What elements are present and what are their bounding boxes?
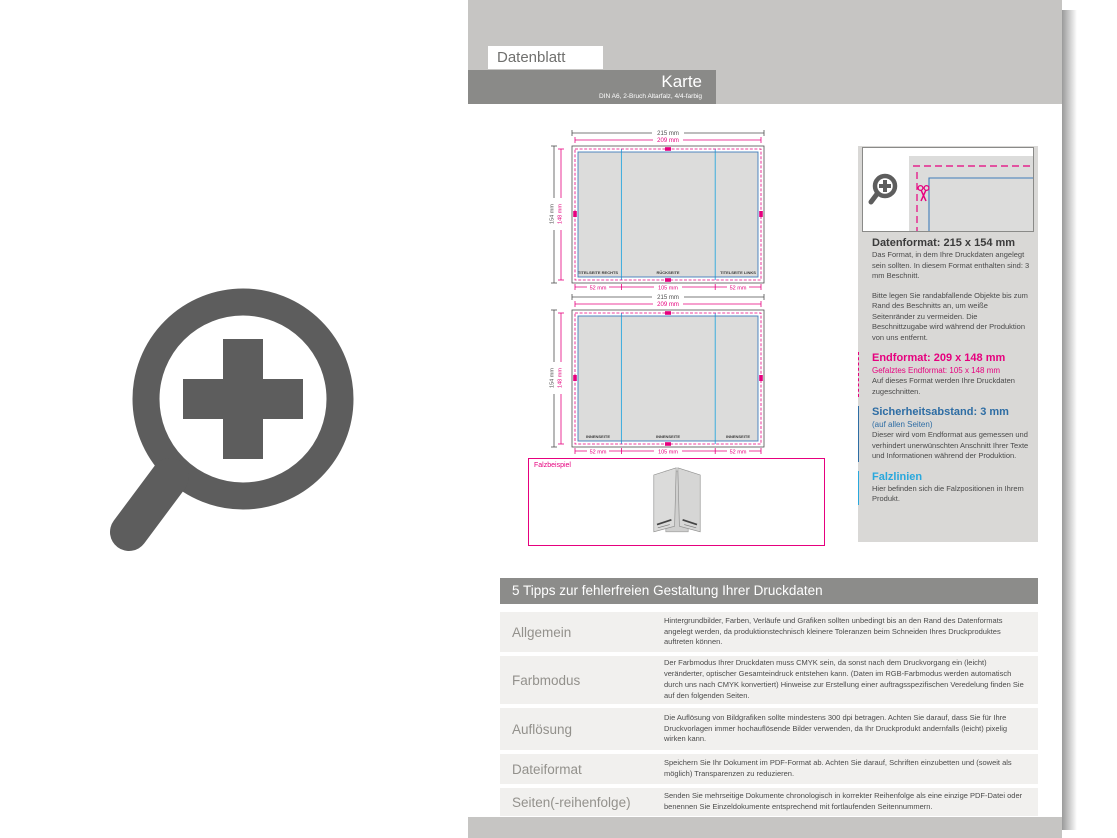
- zoom-plus-icon: [105, 287, 360, 567]
- dim-label: 105 mm: [658, 449, 678, 455]
- footer-band: [468, 817, 1062, 838]
- datenformat-heading: Datenformat: 215 x 154 mm: [872, 237, 1030, 250]
- tip-text: Der Farbmodus Ihrer Druckdaten muss CMYK…: [664, 658, 1038, 702]
- dim-label: 148 mm: [558, 204, 564, 224]
- tip-text: Senden Sie mehrseitige Dokumente chronol…: [664, 791, 1038, 813]
- datenblatt-tab: Datenblatt: [488, 46, 603, 69]
- tips-header: 5 Tipps zur fehlerfreien Gestaltung Ihre…: [500, 578, 1038, 604]
- page-edge-shadow: [1062, 10, 1077, 830]
- endformat-body: Auf dieses Format werden Ihre Druckdaten…: [872, 376, 1030, 397]
- tip-label: Auflösung: [500, 722, 664, 737]
- tip-label: Farbmodus: [500, 673, 664, 688]
- tip-label: Seiten(-reihenfolge): [500, 795, 664, 810]
- dim-label: 148 mm: [558, 368, 564, 388]
- dimension-width-outer: 215 mm: [572, 129, 764, 138]
- dim-label: 154 mm: [550, 204, 556, 224]
- dimension-height: 154 mm 148 mm: [548, 146, 564, 283]
- dimension-width-inner: 209 mm: [575, 136, 761, 144]
- dimension-width-inner: 209 mm: [575, 300, 761, 308]
- document-page: Datenblatt Karte DIN A6, 2-Bruch Altarfa…: [468, 0, 1062, 838]
- panel-label: INNENSEITE: [586, 434, 610, 439]
- section-endformat: Endformat: 209 x 148 mm Gefalztes Endfor…: [858, 352, 1030, 397]
- dim-label: 209 mm: [657, 302, 679, 308]
- section-sicherheitsabstand: Sicherheitsabstand: 3 mm (auf allen Seit…: [858, 406, 1030, 462]
- tip-text: Die Auflösung von Bildgrafiken sollte mi…: [664, 713, 1038, 746]
- panel-label: TITELSEITE LINKS: [720, 270, 756, 275]
- detail-page-corner: [909, 156, 1033, 231]
- panel-label: INNENSEITE: [726, 434, 750, 439]
- tip-label: Allgemein: [500, 625, 664, 640]
- page-title: Karte: [468, 72, 702, 92]
- plus-horizontal-bar: [183, 379, 303, 419]
- section-datenformat: Datenformat: 215 x 154 mm Das Format, in…: [872, 237, 1030, 282]
- falzlinien-heading: Falzlinien: [872, 471, 1030, 484]
- dimension-width-outer: 215 mm: [572, 293, 764, 302]
- info-panel: Datenformat: 215 x 154 mm Das Format, in…: [858, 146, 1038, 542]
- diagram-outside: 215 mm 209 mm 154 mm 148 mm: [542, 126, 782, 292]
- page-area: [578, 316, 758, 441]
- sicherheitsabstand-heading: Sicherheitsabstand: 3 mm: [872, 406, 1030, 419]
- dimension-panels: 52 mm 105 mm 52 mm: [575, 448, 761, 456]
- page-area: [578, 152, 758, 277]
- dim-label: 209 mm: [657, 138, 679, 144]
- sicherheitsabstand-subheading: (auf allen Seiten): [872, 419, 1030, 430]
- section-bleed-note: Bitte legen Sie randabfallende Objekte b…: [872, 291, 1030, 344]
- tips-row-aufloesung: Auflösung Die Auflösung von Bildgrafiken…: [500, 708, 1038, 750]
- magnifier-handle: [129, 477, 170, 532]
- datasheet-screenshot: Datenblatt Karte DIN A6, 2-Bruch Altarfa…: [0, 0, 1117, 838]
- sicherheitsabstand-body: Dieser wird vom Endformat aus gemessen u…: [872, 430, 1030, 462]
- bleed-detail-box: [862, 147, 1034, 232]
- dim-label: 154 mm: [550, 368, 556, 388]
- fold-example-box: Falzbeispiel: [528, 458, 825, 546]
- section-falzlinien: Falzlinien Hier befinden sich die Falzpo…: [858, 471, 1030, 505]
- bleed-note-text: Bitte legen Sie randabfallende Objekte b…: [872, 291, 1030, 344]
- tip-text: Speichern Sie Ihr Dokument im PDF-Format…: [664, 758, 1038, 780]
- tips-row-dateiformat: Dateiformat Speichern Sie Ihr Dokument i…: [500, 754, 1038, 784]
- datenformat-body: Das Format, in dem Ihre Druckdaten angel…: [872, 250, 1030, 282]
- page-subtitle: DIN A6, 2-Bruch Altarfalz, 4/4-farbig: [468, 92, 702, 101]
- title-band: Karte DIN A6, 2-Bruch Altarfalz, 4/4-far…: [468, 70, 716, 104]
- tips-row-seitenreihenfolge: Seiten(-reihenfolge) Senden Sie mehrseit…: [500, 788, 1038, 816]
- magnifier-plus-icon-small: [871, 176, 895, 202]
- tips-table: 5 Tipps zur fehlerfreien Gestaltung Ihre…: [500, 578, 1038, 820]
- dim-label: 52 mm: [730, 449, 747, 455]
- fold-example-label: Falzbeispiel: [534, 462, 571, 469]
- panel-label: TITELSEITE RECHTS: [578, 270, 619, 275]
- diagram-inside: 215 mm 209 mm 154 mm 148 mm: [542, 290, 782, 456]
- endformat-heading: Endformat: 209 x 148 mm: [872, 352, 1030, 365]
- dimension-height: 154 mm 148 mm: [548, 310, 564, 447]
- falzlinien-body: Hier befinden sich die Falzpositionen in…: [872, 484, 1030, 505]
- tips-row-allgemein: Allgemein Hintergrundbilder, Farben, Ver…: [500, 612, 1038, 652]
- dim-label: 52 mm: [590, 449, 607, 455]
- tip-text: Hintergrundbilder, Farben, Verläufe und …: [664, 616, 1038, 649]
- endformat-subheading: Gefalztes Endformat: 105 x 148 mm: [872, 365, 1030, 376]
- tips-row-farbmodus: Farbmodus Der Farbmodus Ihrer Druckdaten…: [500, 656, 1038, 704]
- panel-label: RÜCKSEITE: [656, 270, 679, 275]
- tip-label: Dateiformat: [500, 762, 664, 777]
- panel-label: INNENSEITE: [656, 434, 680, 439]
- gatefold-illustration: [639, 463, 715, 543]
